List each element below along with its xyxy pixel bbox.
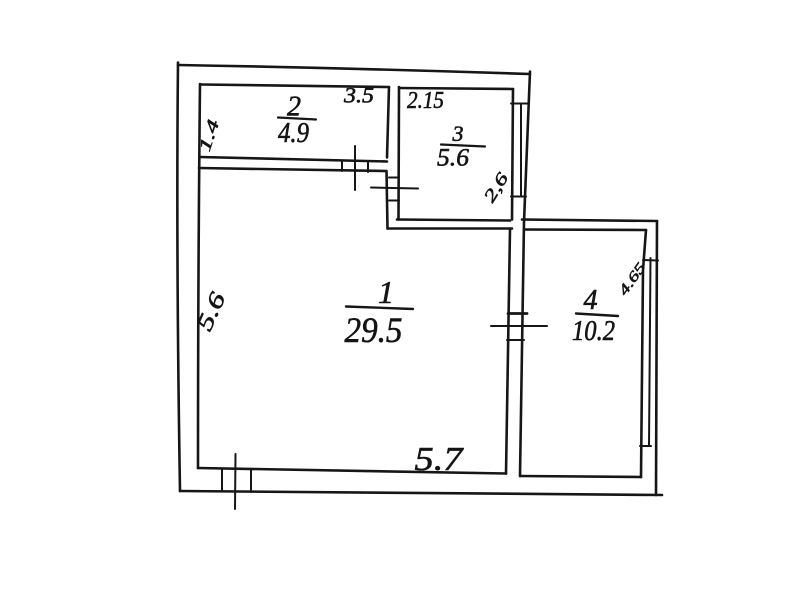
svg-text:4.65: 4.65 (617, 260, 650, 298)
svg-text:5.6: 5.6 (437, 145, 470, 172)
svg-text:1: 1 (378, 274, 394, 310)
svg-text:2,6: 2,6 (480, 169, 513, 206)
svg-text:4.9: 4.9 (278, 118, 309, 149)
svg-text:3: 3 (452, 121, 464, 146)
svg-text:10.2: 10.2 (572, 316, 615, 347)
svg-text:5.7: 5.7 (415, 441, 465, 478)
svg-text:4: 4 (584, 285, 598, 316)
svg-text:3.5: 3.5 (343, 83, 374, 108)
svg-text:29.5: 29.5 (345, 310, 403, 350)
svg-text:2.15: 2.15 (407, 88, 444, 114)
